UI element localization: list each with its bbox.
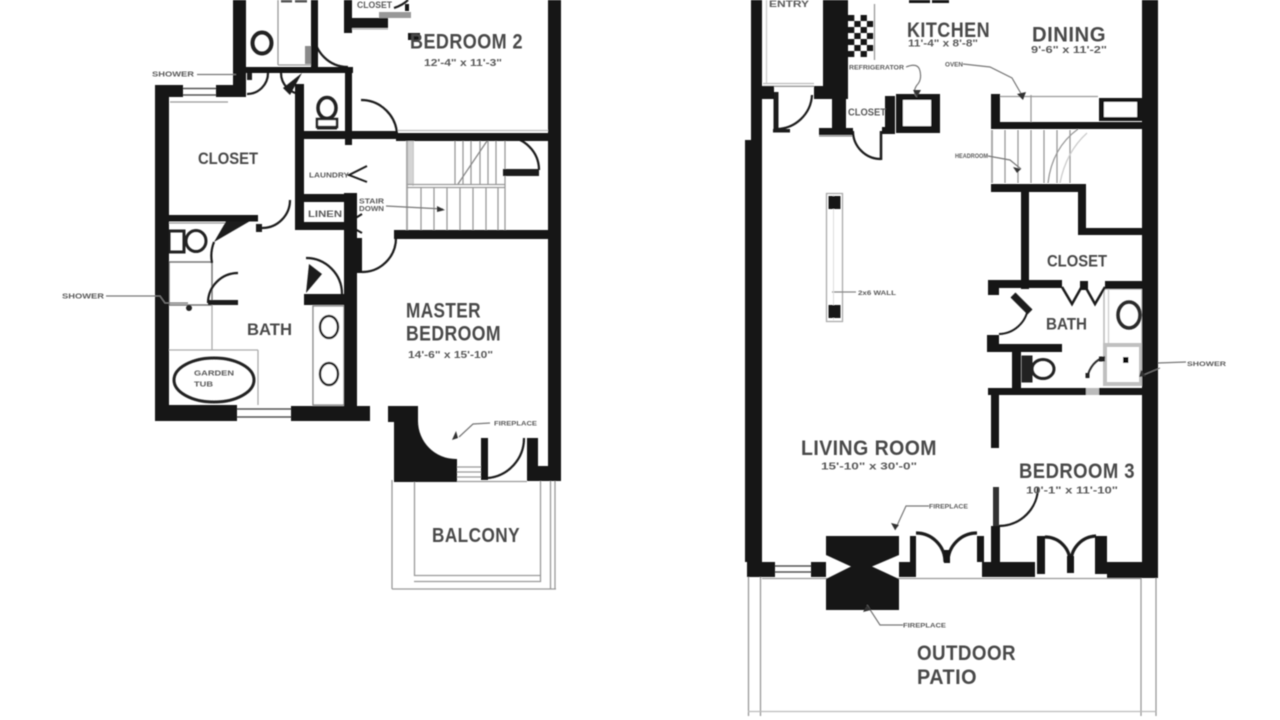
svg-text:REFRIGERATOR: REFRIGERATOR [849, 65, 904, 72]
svg-text:9'-6" x 11'-2": 9'-6" x 11'-2" [1031, 45, 1107, 56]
svg-text:CLOSET: CLOSET [357, 0, 392, 10]
svg-text:PATIO: PATIO [917, 666, 977, 689]
svg-text:LAUNDRY: LAUNDRY [309, 171, 349, 180]
svg-text:FIREPLACE: FIREPLACE [903, 623, 947, 630]
svg-text:STAIR: STAIR [359, 199, 384, 206]
svg-text:15'-10" x 30'-0": 15'-10" x 30'-0" [821, 462, 917, 473]
svg-text:LIVING ROOM: LIVING ROOM [801, 437, 937, 460]
svg-text:FIREPLACE: FIREPLACE [929, 504, 969, 511]
svg-text:10'-1" x 11'-10": 10'-1" x 11'-10" [1026, 486, 1118, 497]
svg-text:11'-4" x 8'-8": 11'-4" x 8'-8" [908, 39, 978, 50]
svg-text:TUB: TUB [194, 382, 213, 389]
svg-text:BEDROOM: BEDROOM [406, 323, 501, 346]
svg-text:FIREPLACE: FIREPLACE [494, 421, 538, 428]
svg-text:12'-4" x 11'-3": 12'-4" x 11'-3" [424, 58, 502, 69]
svg-text:CLOSET: CLOSET [848, 108, 886, 119]
svg-text:DOWN: DOWN [359, 206, 384, 213]
svg-text:BATH: BATH [247, 320, 292, 339]
svg-text:HEADROOM: HEADROOM [955, 153, 988, 160]
svg-text:SHOWER: SHOWER [62, 294, 104, 301]
svg-text:CLOSET: CLOSET [198, 149, 259, 168]
svg-text:BATH: BATH [1046, 315, 1087, 334]
svg-text:OUTDOOR: OUTDOOR [917, 642, 1016, 665]
svg-text:SHOWER: SHOWER [1187, 361, 1226, 368]
svg-text:BEDROOM 3: BEDROOM 3 [1019, 460, 1135, 483]
svg-text:GARDEN: GARDEN [194, 371, 234, 378]
svg-text:DINING: DINING [1032, 24, 1106, 47]
svg-text:14'-6" x 15'-10": 14'-6" x 15'-10" [408, 350, 493, 361]
svg-text:BALCONY: BALCONY [432, 525, 520, 547]
svg-text:BEDROOM 2: BEDROOM 2 [410, 31, 523, 54]
svg-text:2x6 WALL: 2x6 WALL [858, 290, 896, 297]
svg-text:SHOWER: SHOWER [152, 72, 194, 79]
svg-text:OVEN: OVEN [945, 62, 963, 69]
svg-text:CLOSET: CLOSET [1047, 252, 1108, 271]
svg-text:MASTER: MASTER [406, 300, 481, 323]
svg-text:ENTRY: ENTRY [769, 0, 809, 9]
svg-text:LINEN: LINEN [308, 209, 342, 220]
